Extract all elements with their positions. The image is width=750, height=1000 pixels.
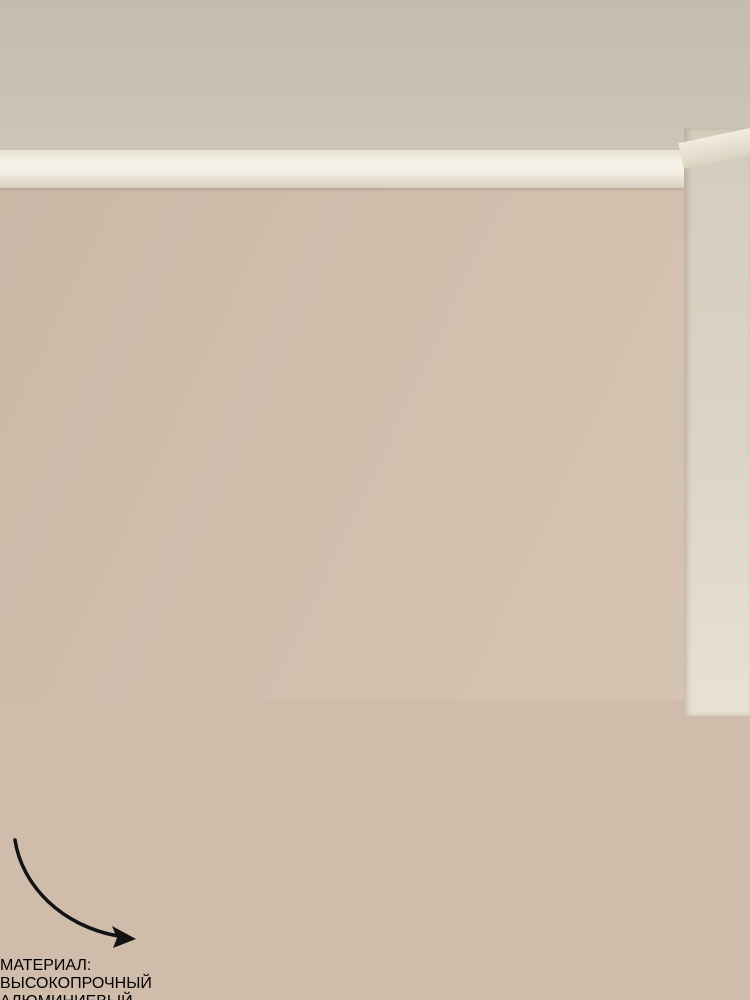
material-label: МАТЕРИАЛ: — [0, 957, 750, 975]
baseboard — [0, 694, 750, 738]
wall — [0, 186, 750, 700]
right-wall-corner — [684, 128, 750, 716]
material-line1: ВЫСОКОПРОЧНЫЙ — [0, 975, 750, 993]
material-line2: АЛЮМИНИЕВЫЙ — [0, 993, 750, 1000]
product-infographic: ХАРАКТЕРИСТИКИ — [0, 0, 750, 1000]
material-callout: МАТЕРИАЛ: ВЫСОКОПРОЧНЫЙ АЛЮМИНИЕВЫЙ СПЛА… — [0, 957, 750, 1000]
curved-arrow-icon — [0, 834, 145, 952]
ceiling — [0, 0, 750, 158]
crown-molding — [0, 150, 750, 188]
